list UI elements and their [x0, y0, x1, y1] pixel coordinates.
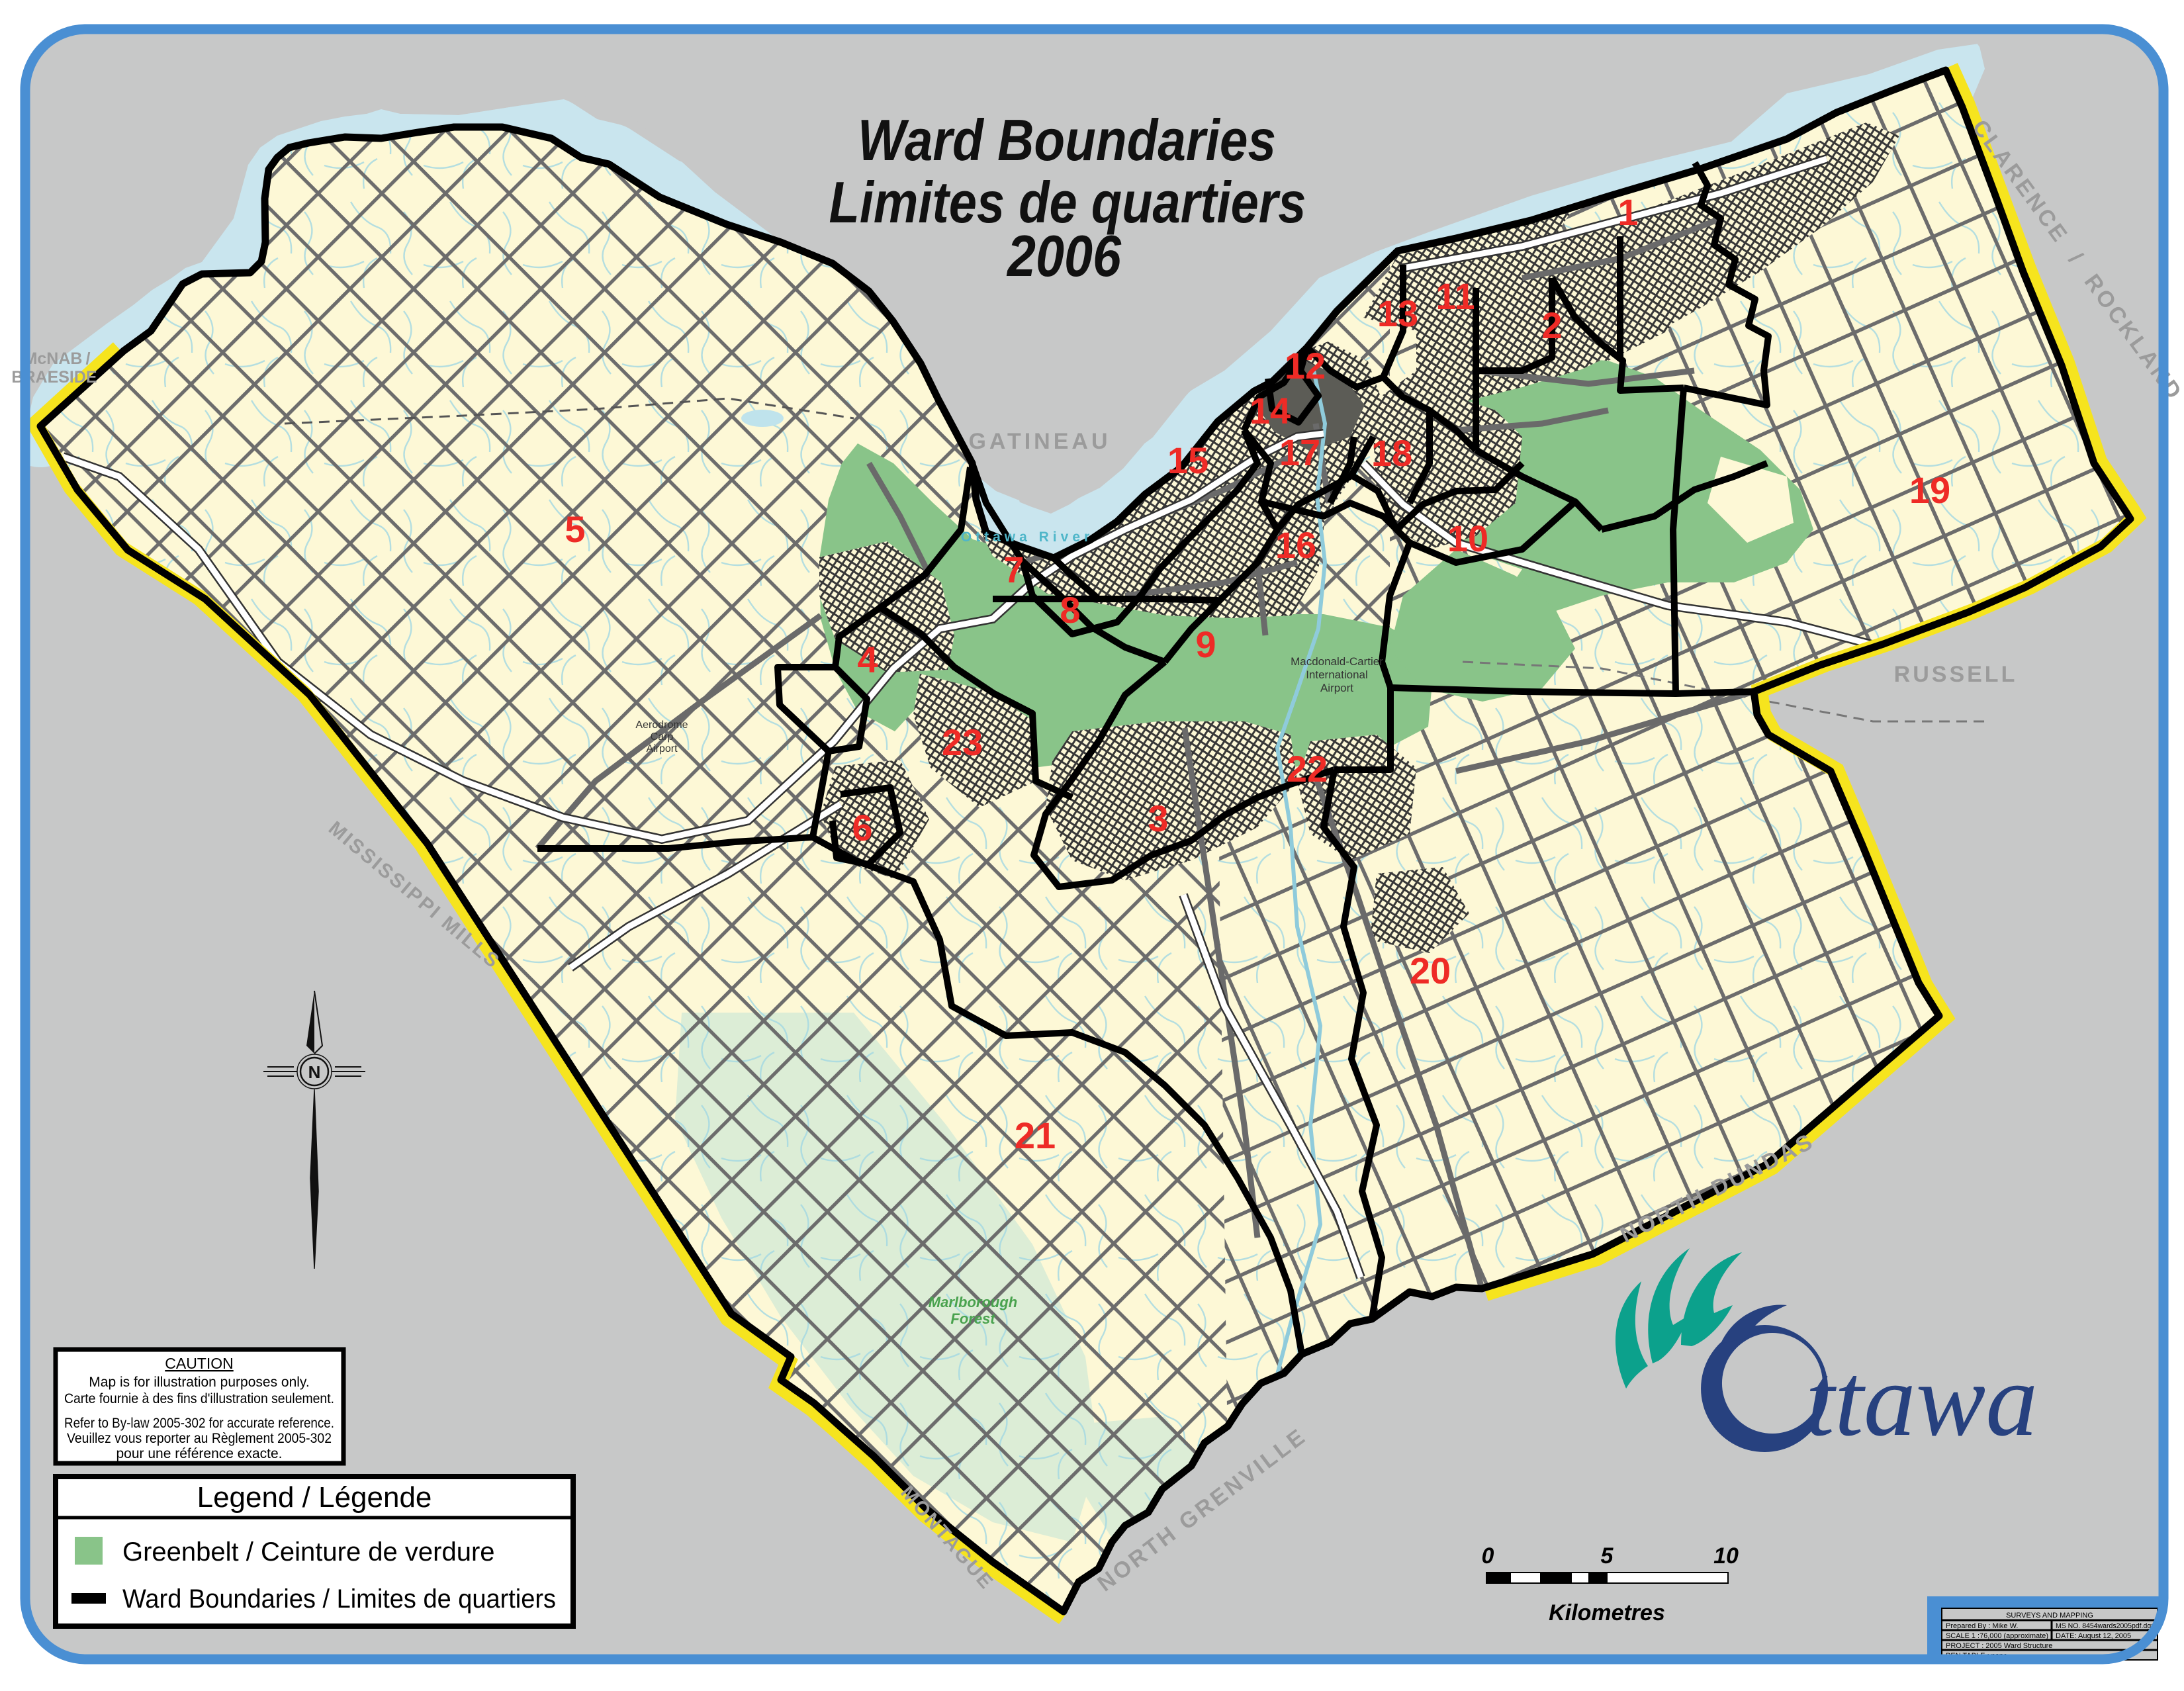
svg-text:2006: 2006 — [1006, 223, 1122, 289]
svg-text:5: 5 — [1601, 1543, 1614, 1569]
svg-text:RUSSELL: RUSSELL — [1894, 662, 2018, 687]
svg-text:10: 10 — [1713, 1543, 1739, 1569]
svg-text:SCALE 1 :76,000 (approxima: SCALE 1 :76,000 (approximate) — [1946, 1632, 2048, 1640]
svg-text:Ottawa River: Ottawa River — [961, 529, 1093, 545]
svg-text:MS NO. 8454wards2005pdf.dgn: MS NO. 8454wards2005pdf.dgn — [2056, 1622, 2155, 1630]
svg-text:7: 7 — [1003, 549, 1024, 590]
svg-text:Map is for illustration purpos: Map is for illustration purposes only. — [89, 1375, 309, 1390]
svg-text:Prepared By : Mike W.: Prepared By : Mike W. — [1946, 1622, 2018, 1630]
svg-text:11: 11 — [1435, 275, 1475, 317]
svg-text:GATINEAU: GATINEAU — [968, 429, 1111, 454]
svg-text:ttawa: ttawa — [1805, 1342, 2038, 1458]
svg-text:6: 6 — [852, 807, 872, 848]
svg-text:0: 0 — [1482, 1543, 1494, 1569]
svg-text:4: 4 — [857, 639, 878, 680]
svg-text:Ward Boundaries / Limites de q: Ward Boundaries / Limites de quartiers — [122, 1584, 556, 1614]
svg-text:8: 8 — [1060, 589, 1080, 631]
svg-text:Ward Boundaries: Ward Boundaries — [858, 107, 1276, 173]
svg-text:Airport: Airport — [1320, 682, 1353, 694]
svg-text:PROJECT : 2005 Ward Structure: PROJECT : 2005 Ward Structure — [1946, 1642, 2052, 1650]
svg-text:Kilometres: Kilometres — [1549, 1600, 1665, 1625]
svg-text:12: 12 — [1285, 345, 1326, 387]
svg-text:Greenbelt / Ceinture de verdur: Greenbelt / Ceinture de verdure — [122, 1537, 495, 1567]
svg-text:23: 23 — [942, 721, 983, 763]
svg-text:2: 2 — [1541, 304, 1562, 346]
svg-text:Veuillez vous reporter au Règl: Veuillez vous reporter au Règlement 2005… — [67, 1431, 332, 1446]
svg-text:Refer to By-law 2005-302 for a: Refer to By-law 2005-302 for accurate re… — [64, 1416, 334, 1431]
svg-text:14: 14 — [1250, 390, 1291, 432]
svg-text:17: 17 — [1279, 432, 1320, 473]
svg-text:13: 13 — [1377, 293, 1418, 334]
svg-text:20: 20 — [1410, 950, 1451, 991]
svg-text:22: 22 — [1287, 748, 1328, 790]
svg-text:DATE: August 12, 2005: DATE: August 12, 2005 — [2056, 1632, 2131, 1640]
svg-text:16: 16 — [1275, 524, 1316, 566]
svg-text:International: International — [1306, 668, 1368, 681]
svg-text:Macdonald-Cartier: Macdonald-Cartier — [1291, 655, 1383, 668]
svg-text:N: N — [308, 1062, 321, 1082]
svg-text:1: 1 — [1617, 191, 1638, 233]
svg-text:19: 19 — [1909, 469, 1950, 511]
svg-text:15: 15 — [1167, 439, 1208, 481]
svg-text:21: 21 — [1015, 1115, 1056, 1156]
svg-text:9: 9 — [1195, 623, 1216, 665]
svg-text:Forest: Forest — [950, 1310, 996, 1327]
svg-text:Carte fournie à des fins d'ill: Carte fournie à des fins d'illustration … — [64, 1391, 334, 1406]
svg-text:Aerodrome: Aerodrome — [635, 719, 688, 731]
svg-text:10: 10 — [1447, 518, 1488, 559]
svg-text:Carp: Carp — [651, 731, 674, 743]
svg-text:pour une référence exacte.: pour une référence exacte. — [116, 1446, 283, 1461]
svg-text:Airport: Airport — [646, 743, 678, 754]
svg-text:3: 3 — [1148, 798, 1168, 839]
svg-text:Legend / Légende: Legend / Légende — [197, 1481, 432, 1514]
svg-text:Marlborough: Marlborough — [929, 1294, 1017, 1310]
svg-text:5: 5 — [565, 508, 585, 550]
svg-text:CAUTION: CAUTION — [165, 1355, 234, 1372]
svg-text:18: 18 — [1371, 432, 1412, 474]
svg-text:SURVEYS AND MAPPING: SURVEYS AND MAPPING — [2006, 1612, 2093, 1620]
svg-text:McNAB /: McNAB / — [24, 349, 91, 368]
